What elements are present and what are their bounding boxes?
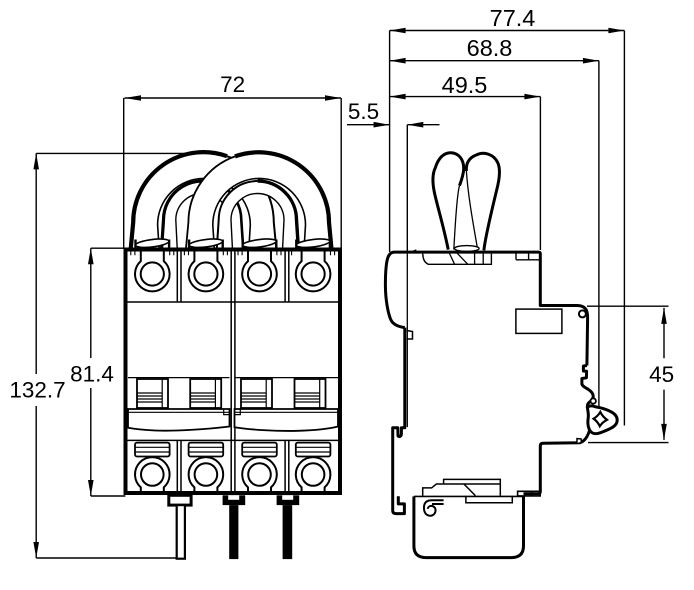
- svg-text:81.4: 81.4: [70, 361, 114, 386]
- svg-text:5.5: 5.5: [348, 99, 379, 124]
- svg-text:49.5: 49.5: [442, 72, 488, 98]
- svg-text:68.8: 68.8: [467, 35, 513, 61]
- svg-text:45: 45: [649, 362, 674, 387]
- svg-text:132.7: 132.7: [9, 378, 65, 403]
- svg-text:77.4: 77.4: [490, 5, 536, 31]
- svg-text:72: 72: [220, 72, 245, 97]
